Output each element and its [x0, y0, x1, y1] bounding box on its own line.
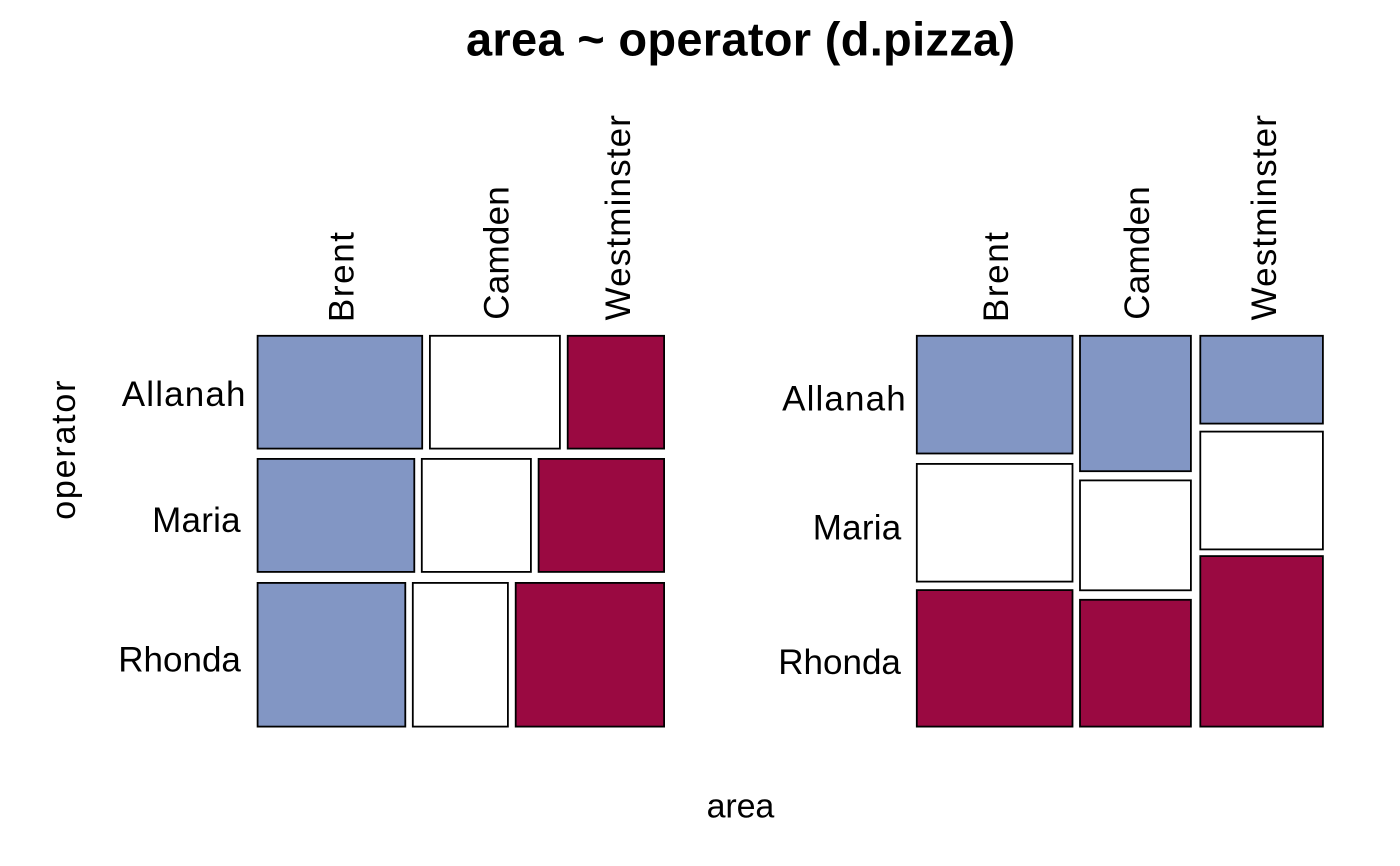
svg-text:Allanah: Allanah [122, 375, 247, 414]
svg-text:Westminster: Westminster [599, 114, 638, 320]
svg-text:Brent: Brent [977, 230, 1016, 322]
svg-text:Rhonda: Rhonda [778, 643, 901, 682]
svg-text:Rhonda: Rhonda [118, 640, 241, 679]
svg-text:operator: operator [45, 379, 83, 520]
svg-text:Camden: Camden [1118, 186, 1157, 320]
svg-text:Maria: Maria [152, 501, 241, 540]
svg-text:Allanah: Allanah [782, 379, 907, 418]
svg-text:Westminster: Westminster [1245, 114, 1284, 320]
svg-text:Camden: Camden [477, 186, 516, 320]
svg-text:Brent: Brent [323, 230, 362, 322]
svg-text:area ~ operator (d.pizza): area ~ operator (d.pizza) [466, 13, 1015, 66]
svg-text:Maria: Maria [813, 508, 902, 547]
svg-text:area: area [707, 788, 775, 826]
